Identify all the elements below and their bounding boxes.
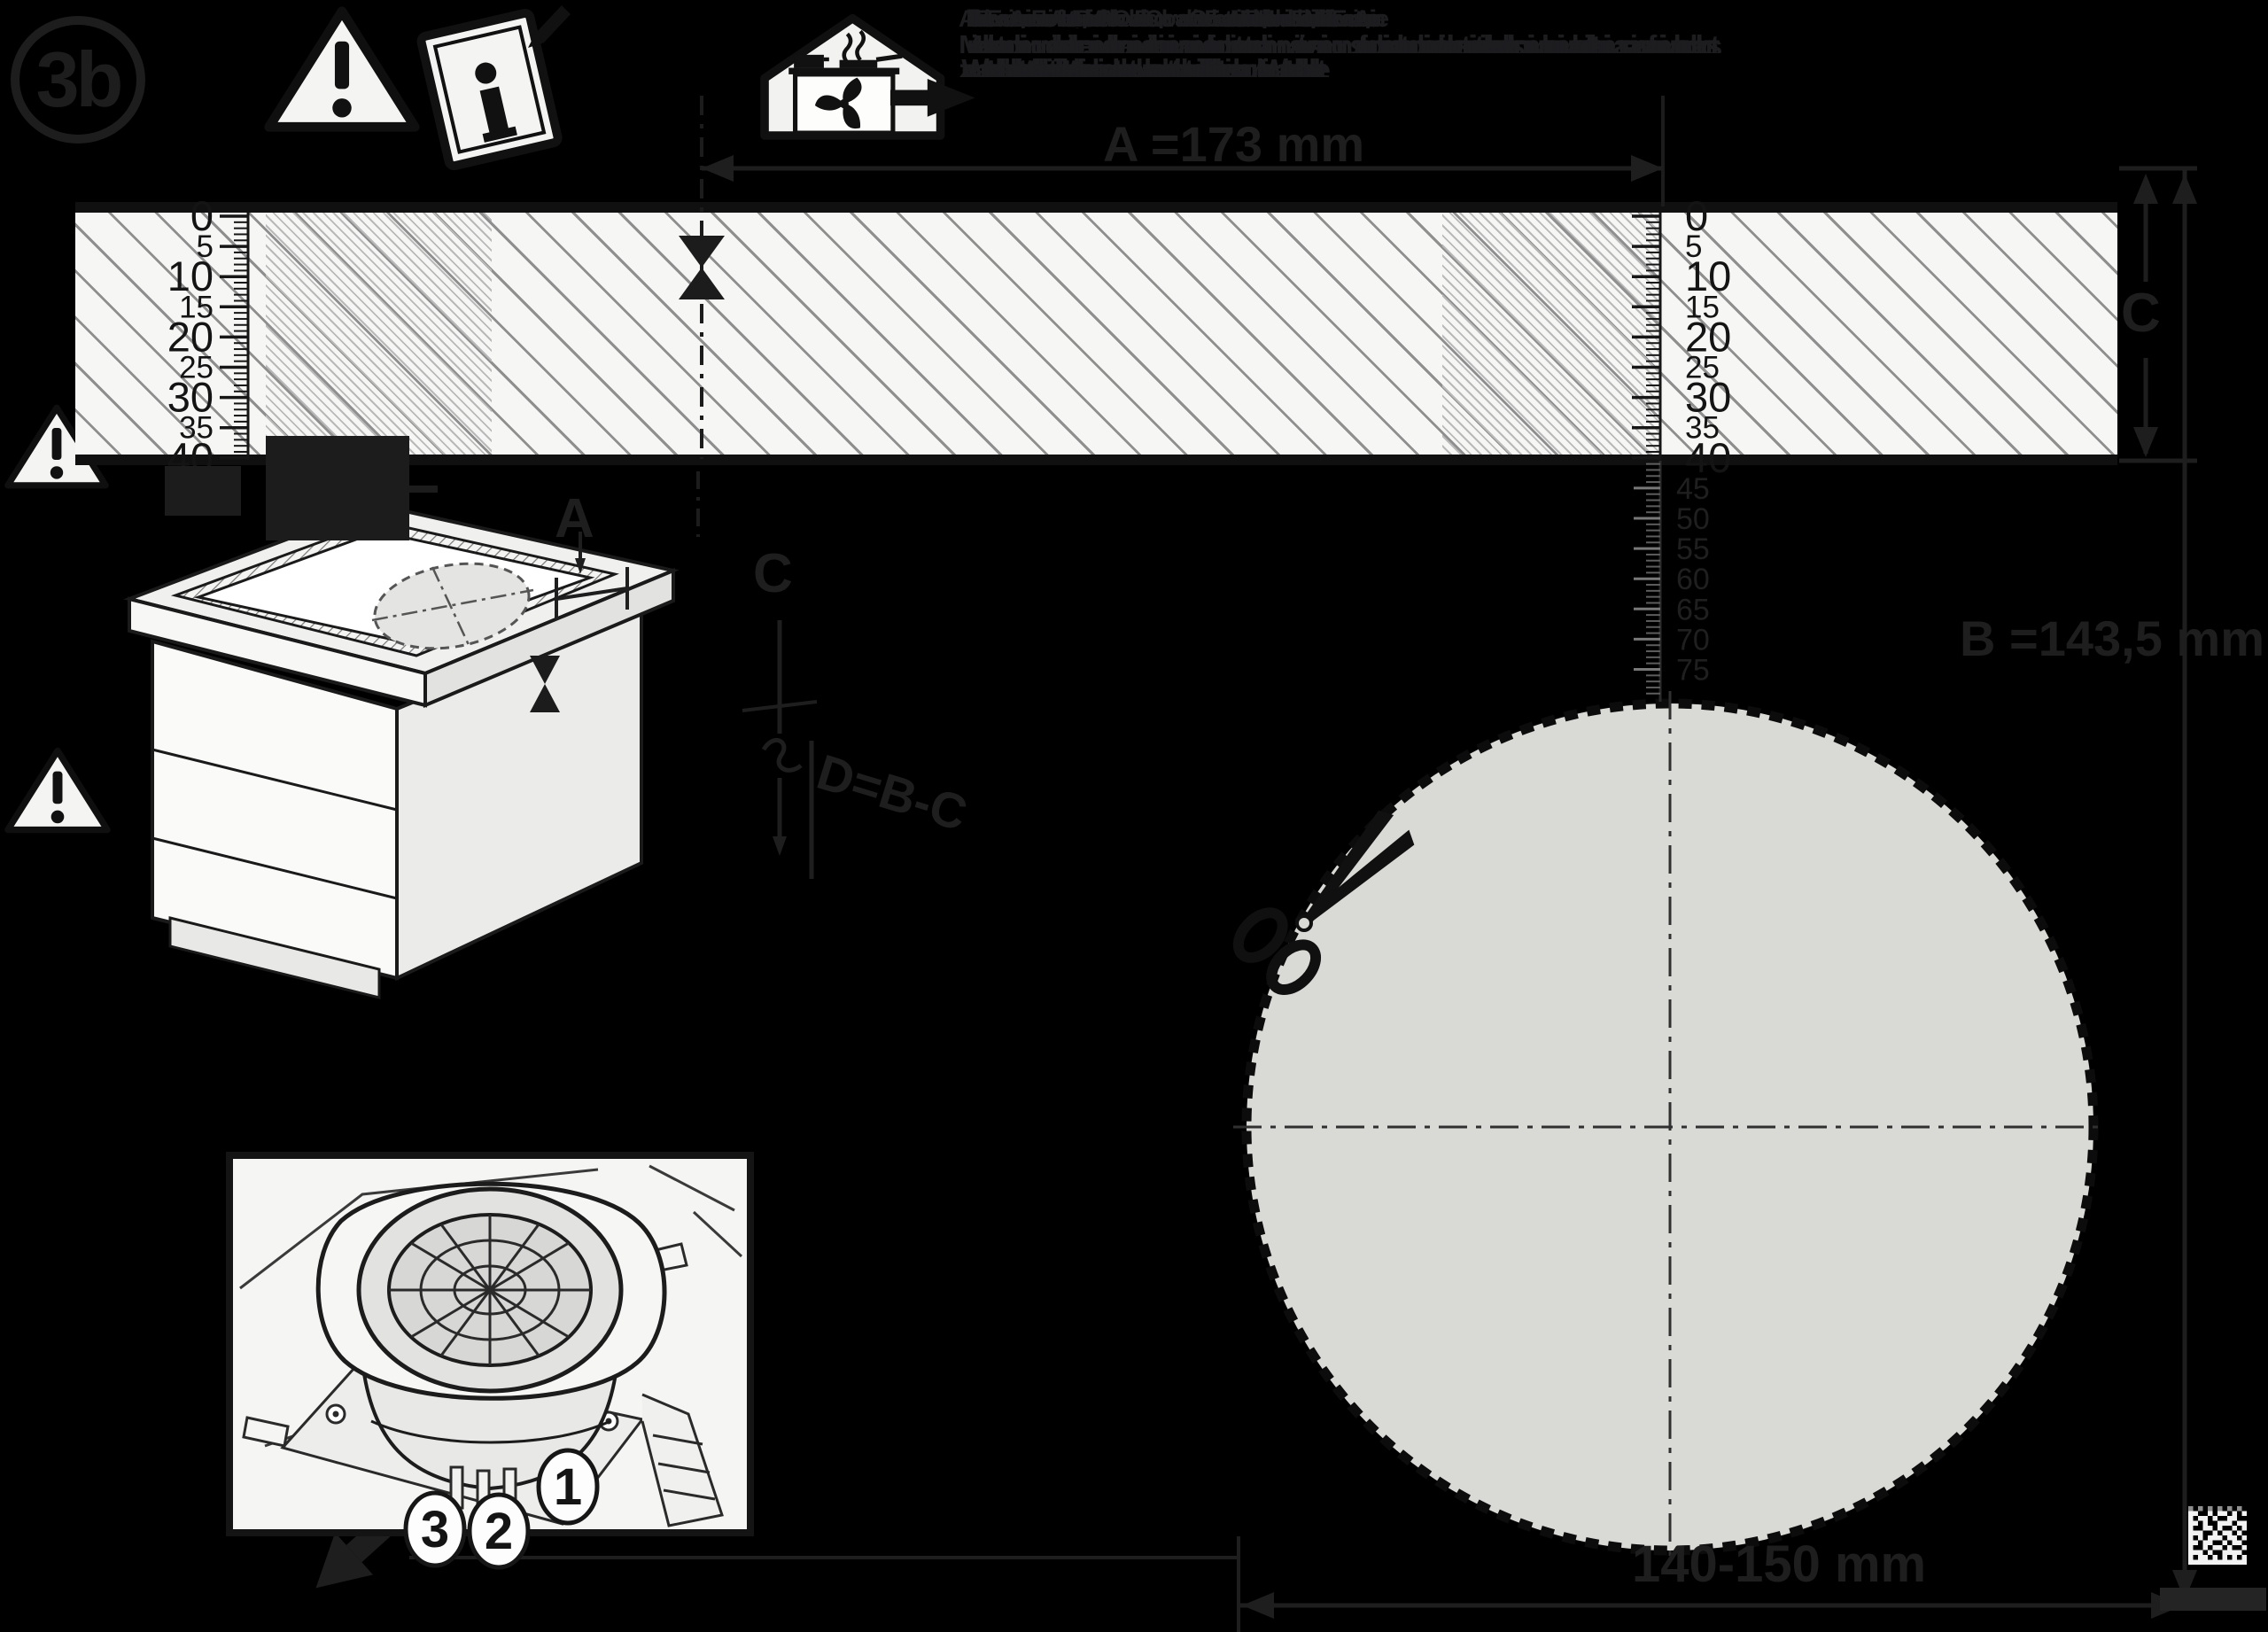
datamatrix-module <box>2208 1560 2213 1566</box>
datamatrix-module <box>2242 1512 2248 1517</box>
datamatrix-module <box>2233 1550 2238 1556</box>
datamatrix-module <box>2218 1526 2223 1531</box>
datamatrix-module <box>2188 1506 2194 1512</box>
datamatrix-module <box>2208 1526 2213 1531</box>
datamatrix-code <box>2188 1506 2247 1565</box>
dim-b-label: B =143,5 mm <box>1960 610 2264 667</box>
datamatrix-module <box>2237 1506 2242 1512</box>
datamatrix-module <box>2203 1555 2209 1560</box>
datamatrix-module <box>2242 1535 2248 1541</box>
filter-housing-illustration: 1 2 3 <box>233 1159 747 1529</box>
datamatrix-module <box>2198 1516 2203 1521</box>
datamatrix-module <box>2233 1526 2238 1531</box>
datamatrix-module <box>2242 1545 2248 1550</box>
datamatrix-module <box>2198 1506 2203 1512</box>
datamatrix-module <box>2223 1512 2228 1517</box>
datamatrix-module <box>2203 1521 2209 1527</box>
datamatrix-module <box>2242 1521 2248 1527</box>
datamatrix-module <box>2188 1521 2194 1527</box>
datamatrix-module <box>2218 1560 2223 1566</box>
datamatrix-module <box>2237 1531 2242 1536</box>
datamatrix-module <box>2198 1550 2203 1556</box>
ruler-left: 0510152025303540 <box>167 192 248 481</box>
datamatrix-module <box>2203 1560 2209 1566</box>
ruler-number-dark: 55 <box>1676 532 1710 566</box>
callout-1: 1 <box>539 1450 597 1523</box>
datamatrix-module <box>2194 1560 2199 1566</box>
datamatrix-module <box>2218 1535 2223 1541</box>
datamatrix-module <box>2213 1560 2218 1566</box>
datamatrix-module <box>2237 1521 2242 1527</box>
datamatrix-module <box>2227 1545 2233 1550</box>
datamatrix-module <box>2242 1560 2248 1566</box>
datamatrix-module <box>2188 1541 2194 1546</box>
datamatrix-module <box>2223 1531 2228 1536</box>
datamatrix-module <box>2242 1526 2248 1531</box>
datamatrix-module <box>2194 1531 2199 1536</box>
datamatrix-module <box>2208 1506 2213 1512</box>
datamatrix-module <box>2188 1516 2194 1521</box>
illegible-mark <box>266 436 409 540</box>
ruler-number-dark: 60 <box>1676 563 1710 596</box>
datamatrix-module <box>2203 1526 2209 1531</box>
ruler-number-dark: 45 <box>1676 472 1710 506</box>
datamatrix-module <box>2188 1560 2194 1566</box>
datamatrix-module <box>2242 1555 2248 1560</box>
datamatrix-module <box>2237 1550 2242 1556</box>
datamatrix-module <box>2227 1531 2233 1536</box>
datamatrix-module <box>2233 1541 2238 1546</box>
illegible-mark <box>165 466 241 516</box>
installation-template-sheet: 3b <box>0 0 2268 1632</box>
datamatrix-module <box>2237 1541 2242 1546</box>
datamatrix-module <box>2188 1531 2194 1536</box>
svg-text:2: 2 <box>485 1503 513 1560</box>
svg-text:1: 1 <box>554 1458 582 1516</box>
datamatrix-module <box>2233 1535 2238 1541</box>
datamatrix-module <box>2227 1506 2233 1512</box>
ruler-number-dark: 65 <box>1676 593 1710 626</box>
datamatrix-module <box>2194 1541 2199 1546</box>
datamatrix-module <box>2218 1512 2223 1517</box>
datamatrix-module <box>2233 1512 2238 1517</box>
datamatrix-module <box>2208 1541 2213 1546</box>
datamatrix-module <box>2218 1545 2223 1550</box>
ruler-number-dark: 75 <box>1676 654 1710 688</box>
datamatrix-module <box>2223 1541 2228 1546</box>
dim-a-label: A =173 mm <box>1103 115 1364 173</box>
datamatrix-module <box>2218 1506 2223 1512</box>
datamatrix-module <box>2188 1512 2194 1517</box>
datamatrix-module <box>2213 1516 2218 1521</box>
datamatrix-module <box>2203 1545 2209 1550</box>
datamatrix-module <box>2188 1555 2194 1560</box>
datamatrix-module <box>2194 1521 2199 1527</box>
datamatrix-module <box>2188 1550 2194 1556</box>
hole-diameter-label: 140-150 mm <box>1632 1535 1926 1594</box>
datamatrix-module <box>2227 1516 2233 1521</box>
datamatrix-module <box>2223 1550 2228 1556</box>
datamatrix-module <box>2188 1545 2194 1550</box>
datamatrix-module <box>2227 1535 2233 1541</box>
ruler-number-dark: 70 <box>1676 623 1710 657</box>
datamatrix-module <box>2208 1550 2213 1556</box>
datamatrix-module <box>2233 1555 2238 1560</box>
datamatrix-module <box>2198 1531 2203 1536</box>
ruler-number-dark: 50 <box>1676 502 1710 536</box>
datamatrix-module <box>2213 1531 2218 1536</box>
datamatrix-module <box>2198 1535 2203 1541</box>
datamatrix-module <box>2188 1526 2194 1531</box>
cabinet-c-label: C <box>753 542 793 605</box>
datamatrix-module <box>2208 1512 2213 1517</box>
svg-text:3: 3 <box>421 1501 449 1558</box>
datamatrix-module <box>2198 1560 2203 1566</box>
datamatrix-module <box>2223 1560 2228 1566</box>
dim-c-label: C <box>2121 282 2161 345</box>
datamatrix-module <box>2233 1560 2238 1566</box>
ruler-extension: 45505560657075 <box>1634 461 1710 702</box>
callout-3: 3 <box>406 1493 464 1566</box>
datamatrix-module <box>2233 1516 2238 1521</box>
datamatrix-module <box>2227 1521 2233 1527</box>
datamatrix-module <box>2227 1560 2233 1566</box>
ruler-right: 0510152025303540 <box>1632 192 1731 481</box>
datamatrix-module <box>2237 1560 2242 1566</box>
datamatrix-module <box>2194 1550 2199 1556</box>
mounting-clip <box>244 1418 288 1446</box>
part-number-illegible <box>2160 1588 2266 1611</box>
datamatrix-module <box>2213 1545 2218 1550</box>
datamatrix-module <box>2223 1521 2228 1527</box>
datamatrix-module <box>2213 1535 2218 1541</box>
registration-mark <box>679 236 725 299</box>
datamatrix-module <box>2208 1535 2213 1541</box>
registration-mark-cabinet <box>530 656 560 712</box>
datamatrix-module <box>2198 1555 2203 1560</box>
datamatrix-module <box>2213 1555 2218 1560</box>
datamatrix-module <box>2203 1516 2209 1521</box>
datamatrix-module <box>2203 1541 2209 1546</box>
callout-2: 2 <box>470 1495 528 1567</box>
cabinet-a-label: A <box>555 487 594 550</box>
datamatrix-module <box>2218 1521 2223 1527</box>
datamatrix-module <box>2194 1512 2199 1517</box>
datamatrix-module <box>2223 1555 2228 1560</box>
datamatrix-module <box>2188 1535 2194 1541</box>
datamatrix-module <box>2227 1550 2233 1556</box>
